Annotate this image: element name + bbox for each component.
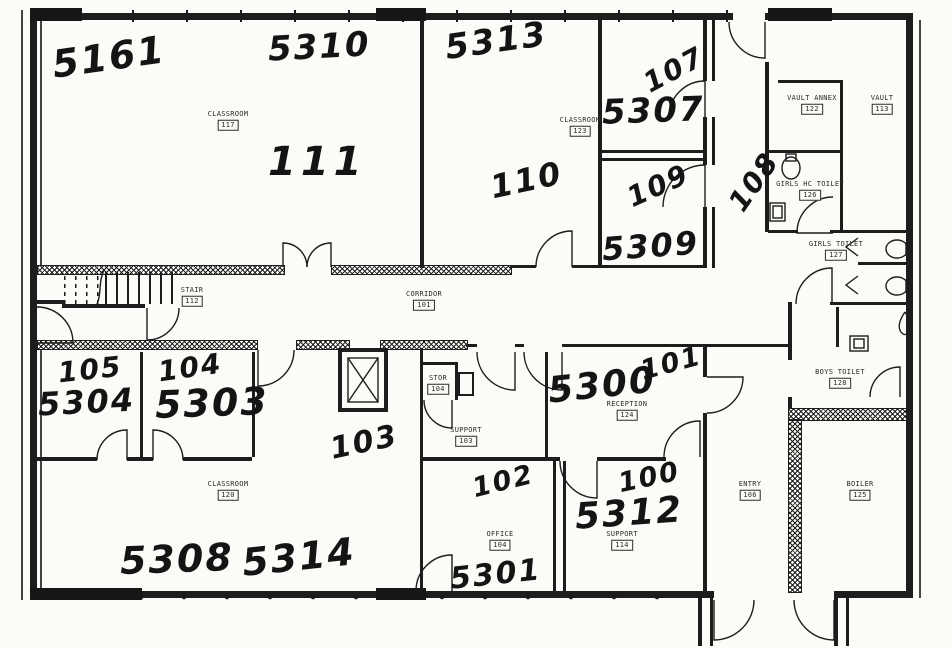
wall-inner-line bbox=[40, 20, 42, 265]
wall bbox=[768, 230, 798, 233]
wall bbox=[703, 344, 788, 347]
wall bbox=[830, 302, 906, 305]
door-arc bbox=[153, 430, 183, 460]
door-arc bbox=[664, 421, 700, 457]
wall bbox=[768, 150, 843, 153]
room-label-vault: VAULT 113 bbox=[871, 94, 894, 115]
room-label-stor: STOR 104 bbox=[427, 374, 449, 395]
toilet-icon bbox=[886, 277, 908, 295]
stair-treads bbox=[105, 272, 175, 304]
stair-treads-dashed bbox=[64, 272, 105, 304]
wall bbox=[846, 598, 849, 646]
wall bbox=[858, 262, 906, 265]
wall-outer-line bbox=[919, 20, 921, 598]
elevator-shaft bbox=[338, 348, 388, 412]
handwritten-number: 5313 bbox=[443, 17, 549, 65]
wall bbox=[30, 13, 37, 598]
wall bbox=[703, 207, 707, 268]
handwritten-number: 5309 bbox=[601, 227, 700, 266]
room-label-text: ENTRY bbox=[739, 480, 762, 489]
wall bbox=[765, 62, 769, 232]
door-arc bbox=[729, 22, 765, 58]
wall bbox=[455, 362, 458, 400]
room-number-box: 128 bbox=[829, 378, 851, 389]
room-label-stair: STAIR 112 bbox=[181, 286, 204, 307]
floor-plan: CLASSROOM 117 CLASSROOM 123 VAULT ANNEX … bbox=[0, 0, 952, 649]
room-label-entry: ENTRY 106 bbox=[739, 480, 762, 501]
wall bbox=[906, 13, 913, 598]
room-label-boiler: BOILER 125 bbox=[846, 480, 873, 501]
door-arc bbox=[796, 268, 832, 304]
handwritten-number: 111 bbox=[268, 142, 367, 182]
wall bbox=[712, 207, 715, 268]
wall bbox=[710, 598, 713, 646]
room-number-box: 112 bbox=[181, 296, 203, 307]
wall bbox=[515, 344, 524, 347]
room-number-box: 104 bbox=[427, 384, 449, 395]
wall bbox=[703, 344, 707, 377]
room-label-text: CLASSROOM bbox=[208, 480, 249, 489]
room-label-classroom-sw: CLASSROOM 120 bbox=[208, 480, 249, 501]
room-number-box: 103 bbox=[455, 436, 477, 447]
room-number-box: 117 bbox=[217, 120, 239, 131]
room-number-box: 125 bbox=[849, 490, 871, 501]
wall bbox=[420, 457, 560, 461]
handwritten-number: 109 bbox=[623, 160, 693, 212]
room-number-box: 104 bbox=[489, 540, 511, 551]
sink-icon bbox=[850, 336, 868, 351]
room-number-box: 120 bbox=[217, 490, 239, 501]
handwritten-number: 5312 bbox=[574, 492, 684, 535]
room-label-text: CORRIDOR bbox=[406, 290, 442, 299]
handwritten-number: 5310 bbox=[267, 27, 371, 66]
room-label-text: GIRLS TOILET bbox=[809, 240, 863, 249]
wall bbox=[788, 397, 792, 408]
door-arc bbox=[870, 367, 900, 397]
room-label-text: GIRLS HC TOILET bbox=[776, 180, 844, 189]
sink-icon bbox=[770, 203, 785, 221]
wall-pier bbox=[30, 8, 82, 21]
hatched-wall bbox=[788, 408, 908, 421]
wall-pier bbox=[768, 8, 832, 21]
wall bbox=[778, 80, 843, 83]
door-arc bbox=[794, 600, 834, 640]
door-arc bbox=[147, 308, 179, 340]
wall bbox=[140, 352, 143, 457]
wall bbox=[830, 230, 906, 233]
wall bbox=[553, 461, 556, 591]
room-label-text: BOILER bbox=[846, 480, 873, 489]
wall bbox=[598, 150, 707, 153]
room-label-corridor: CORRIDOR 101 bbox=[406, 290, 442, 311]
door-arc bbox=[97, 430, 127, 460]
wall bbox=[834, 598, 838, 646]
toilet-icon bbox=[886, 240, 908, 258]
wall bbox=[37, 457, 97, 461]
room-label-text: STAIR bbox=[181, 286, 204, 295]
room-number-box: 126 bbox=[799, 190, 821, 201]
door-arc bbox=[714, 600, 754, 640]
hatched-wall bbox=[37, 340, 258, 350]
room-number-box: 122 bbox=[801, 104, 823, 115]
wall bbox=[420, 20, 424, 268]
room-number-box: 106 bbox=[739, 490, 761, 501]
wall bbox=[420, 348, 423, 591]
room-label-boys-toilet: BOYS TOILET 128 bbox=[815, 368, 865, 389]
door-arc bbox=[37, 307, 73, 343]
hatched-wall bbox=[380, 340, 468, 350]
room-label-vault-annex: VAULT ANNEX 122 bbox=[787, 94, 837, 115]
room-number-box: 127 bbox=[825, 250, 847, 261]
wall bbox=[62, 304, 145, 308]
room-number-box: 113 bbox=[871, 104, 893, 115]
handwritten-number: 5307 bbox=[601, 92, 705, 130]
room-label-office: OFFICE 104 bbox=[486, 530, 513, 551]
sink-basin bbox=[854, 339, 864, 348]
wall bbox=[698, 598, 702, 646]
wall bbox=[420, 362, 458, 365]
handwritten-number: 5308 bbox=[119, 538, 234, 580]
room-label-text: VAULT ANNEX bbox=[787, 94, 837, 103]
room-label-text: BOYS TOILET bbox=[815, 368, 865, 377]
door-arc bbox=[283, 243, 307, 267]
handwritten-number: 101 bbox=[638, 342, 705, 384]
wall-pier bbox=[376, 8, 426, 21]
scan-edge-line bbox=[21, 10, 23, 600]
handwritten-number: 102 bbox=[470, 461, 537, 502]
room-label-text: SUPPORT bbox=[450, 426, 482, 435]
door-arc bbox=[536, 231, 572, 267]
door-arc bbox=[707, 377, 743, 413]
wall-pier bbox=[376, 588, 426, 600]
wall bbox=[183, 457, 252, 461]
wall bbox=[466, 344, 477, 347]
room-number-box: 123 bbox=[569, 126, 591, 137]
handwritten-number: 5301 bbox=[449, 555, 543, 594]
handwritten-number: 5314 bbox=[240, 532, 357, 582]
handwritten-number: 5161 bbox=[50, 30, 168, 83]
hatched-wall bbox=[788, 419, 802, 593]
room-label-classroom-n: CLASSROOM 123 bbox=[560, 116, 601, 137]
wall bbox=[788, 302, 792, 360]
room-label-text: CLASSROOM bbox=[208, 110, 249, 119]
wall bbox=[834, 591, 913, 598]
room-label-support: SUPPORT 103 bbox=[450, 426, 482, 447]
door-arc bbox=[477, 352, 515, 390]
room-number-box: 114 bbox=[611, 540, 633, 551]
room-label-text: CLASSROOM bbox=[560, 116, 601, 125]
room-label-text: OFFICE bbox=[486, 530, 513, 539]
wall bbox=[840, 83, 843, 232]
wall bbox=[703, 413, 707, 591]
room-number-box: 124 bbox=[616, 410, 638, 421]
handwritten-number: 103 bbox=[328, 421, 401, 465]
room-label-girls-toilet: GIRLS TOILET 127 bbox=[809, 240, 863, 261]
door-arc bbox=[797, 197, 833, 233]
hatched-wall bbox=[331, 265, 512, 275]
wall-pier bbox=[30, 588, 142, 600]
wall bbox=[545, 352, 548, 457]
wall bbox=[30, 300, 65, 304]
wall bbox=[712, 117, 715, 165]
room-number-box: 101 bbox=[413, 300, 435, 311]
wall bbox=[836, 307, 839, 347]
wall bbox=[563, 461, 566, 591]
handwritten-number: 5303 bbox=[154, 382, 269, 424]
sink-basin bbox=[773, 206, 782, 218]
wall bbox=[510, 265, 536, 268]
room-label-girls-hc-toilet: GIRLS HC TOILET 126 bbox=[776, 180, 844, 201]
wall bbox=[127, 457, 153, 461]
handwritten-number: 110 bbox=[487, 157, 565, 203]
door-arc bbox=[307, 243, 331, 267]
toilet-tank bbox=[786, 154, 796, 161]
toilet-icon bbox=[782, 157, 800, 179]
duct-shaft bbox=[458, 372, 474, 396]
handwritten-number: 5304 bbox=[37, 383, 136, 420]
wall bbox=[598, 158, 707, 161]
room-label-text: VAULT bbox=[871, 94, 894, 103]
door-arc bbox=[424, 400, 452, 428]
room-label-classroom-nw: CLASSROOM 117 bbox=[208, 110, 249, 131]
wall bbox=[712, 20, 715, 81]
room-label-text: STOR bbox=[427, 374, 449, 383]
